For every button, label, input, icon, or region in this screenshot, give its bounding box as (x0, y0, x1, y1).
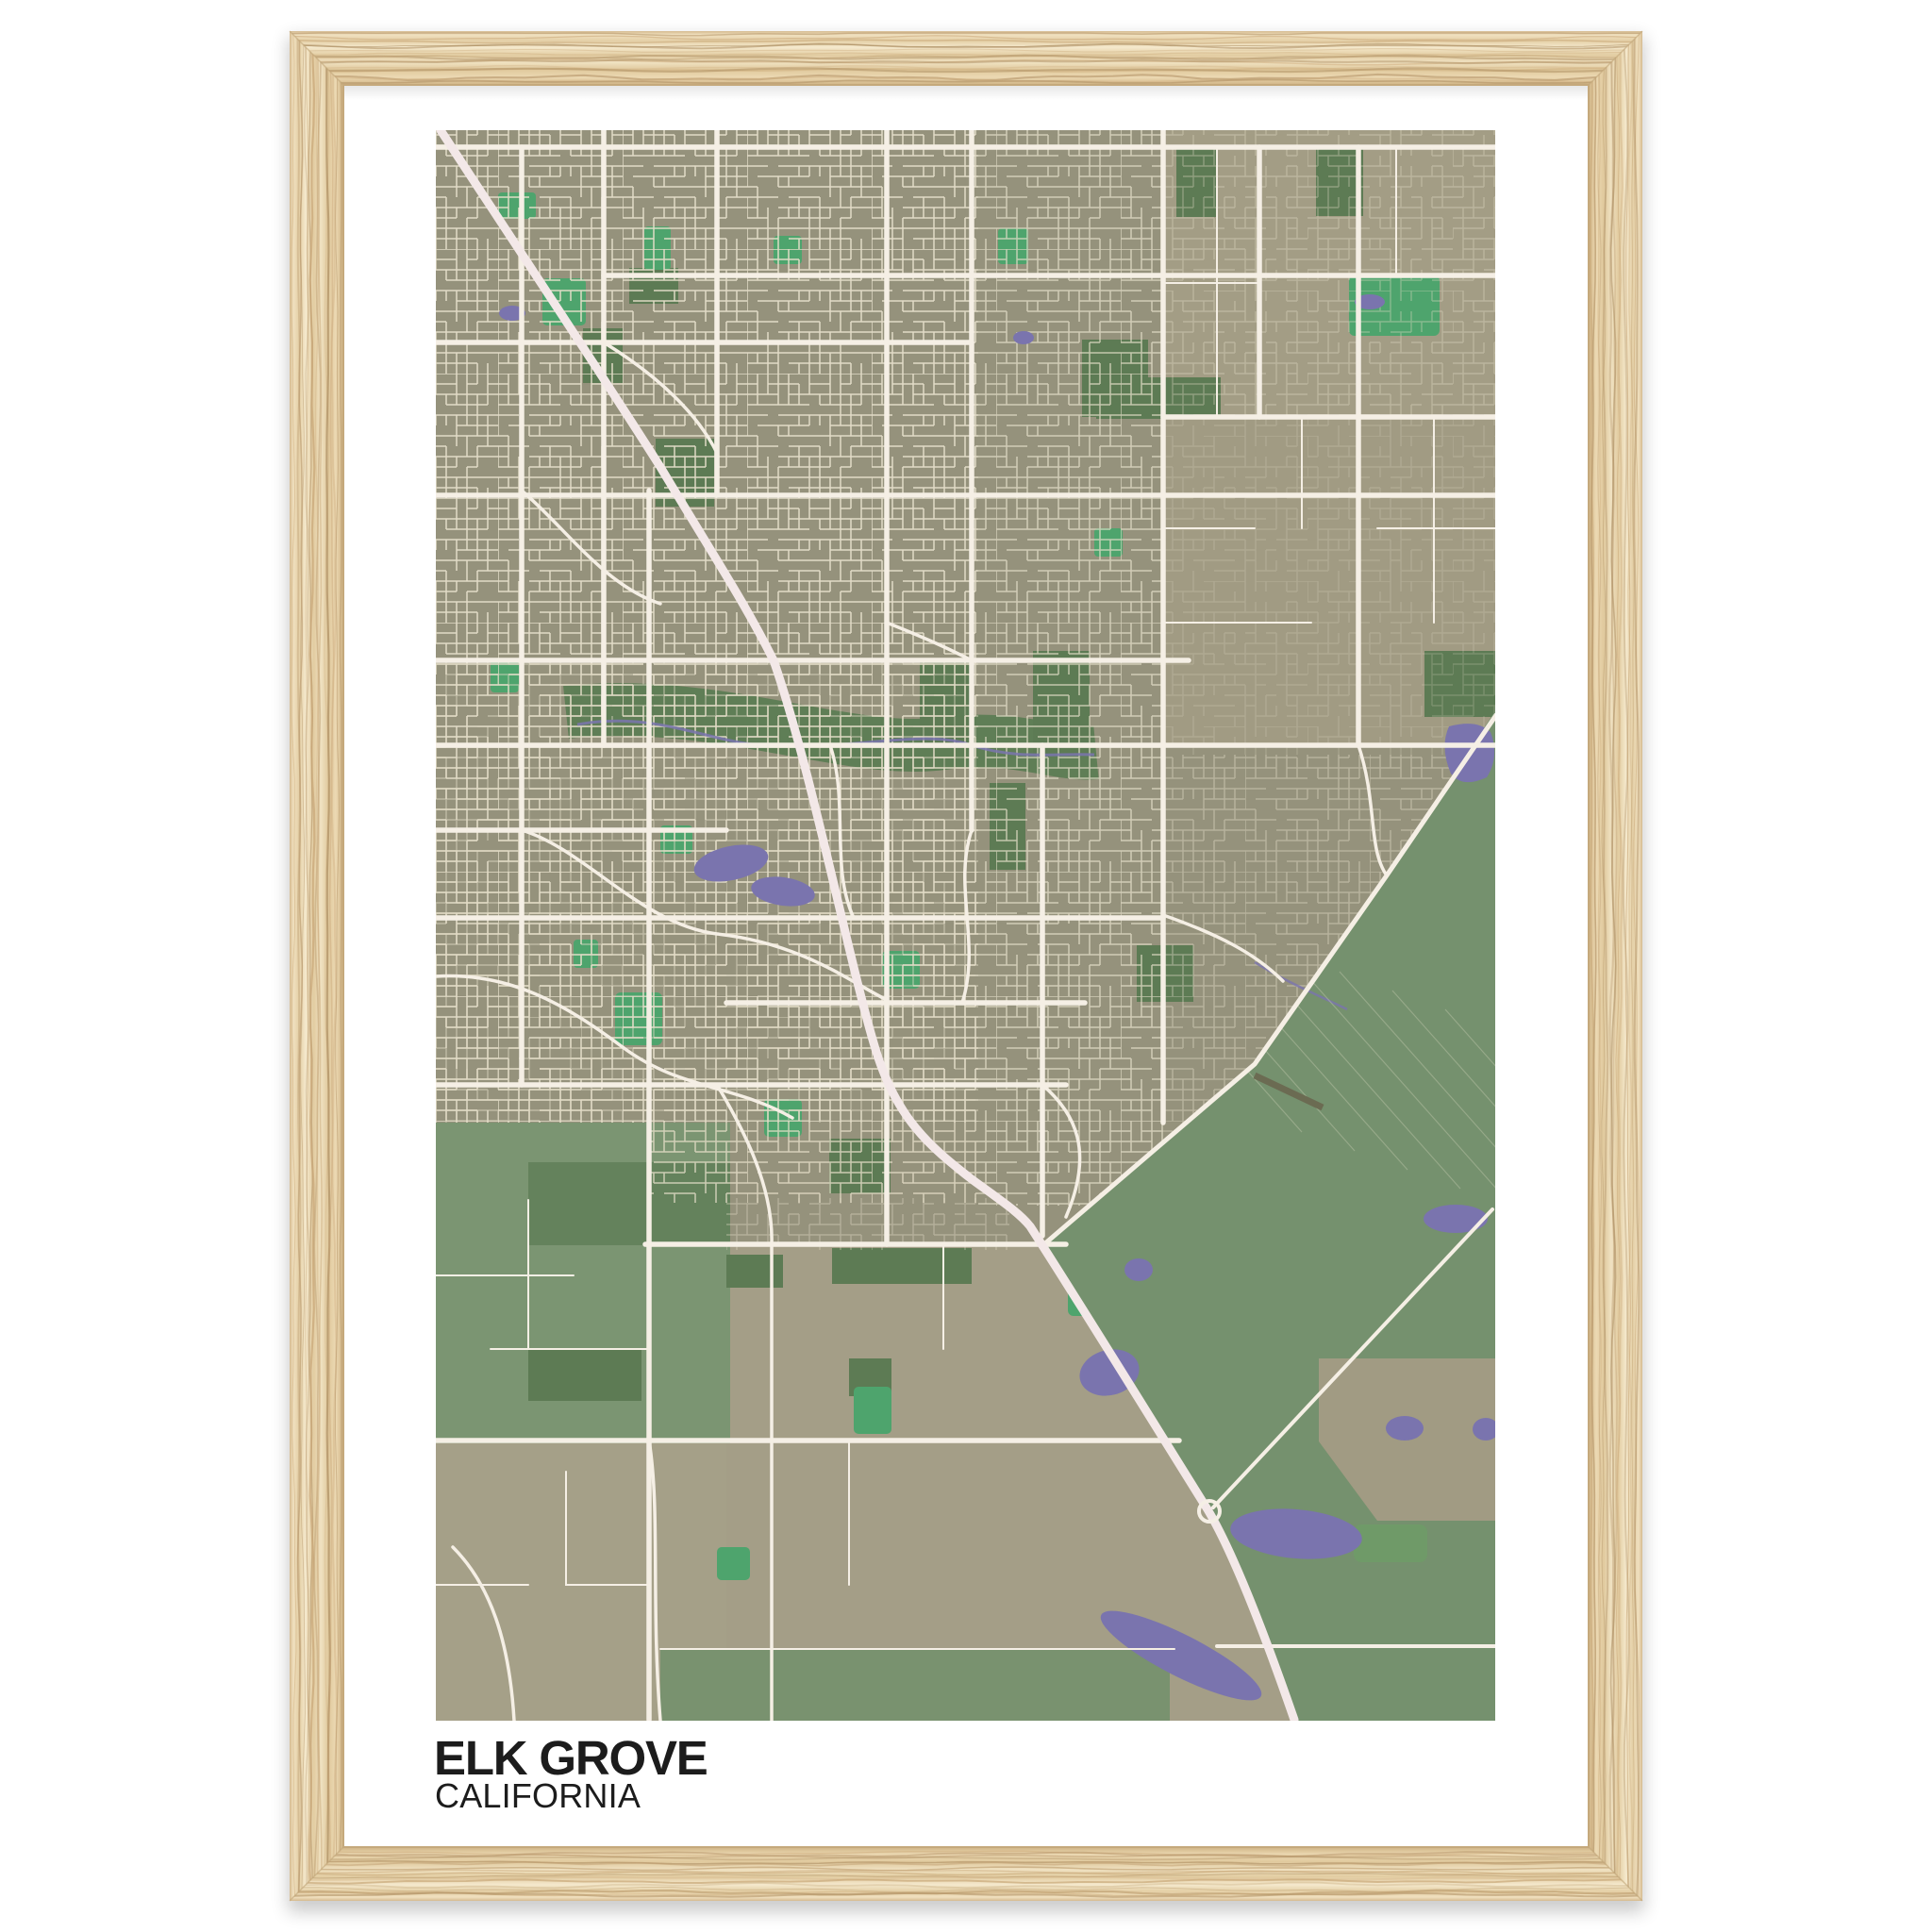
svg-text:CALIFORNIA: CALIFORNIA (435, 1776, 641, 1815)
